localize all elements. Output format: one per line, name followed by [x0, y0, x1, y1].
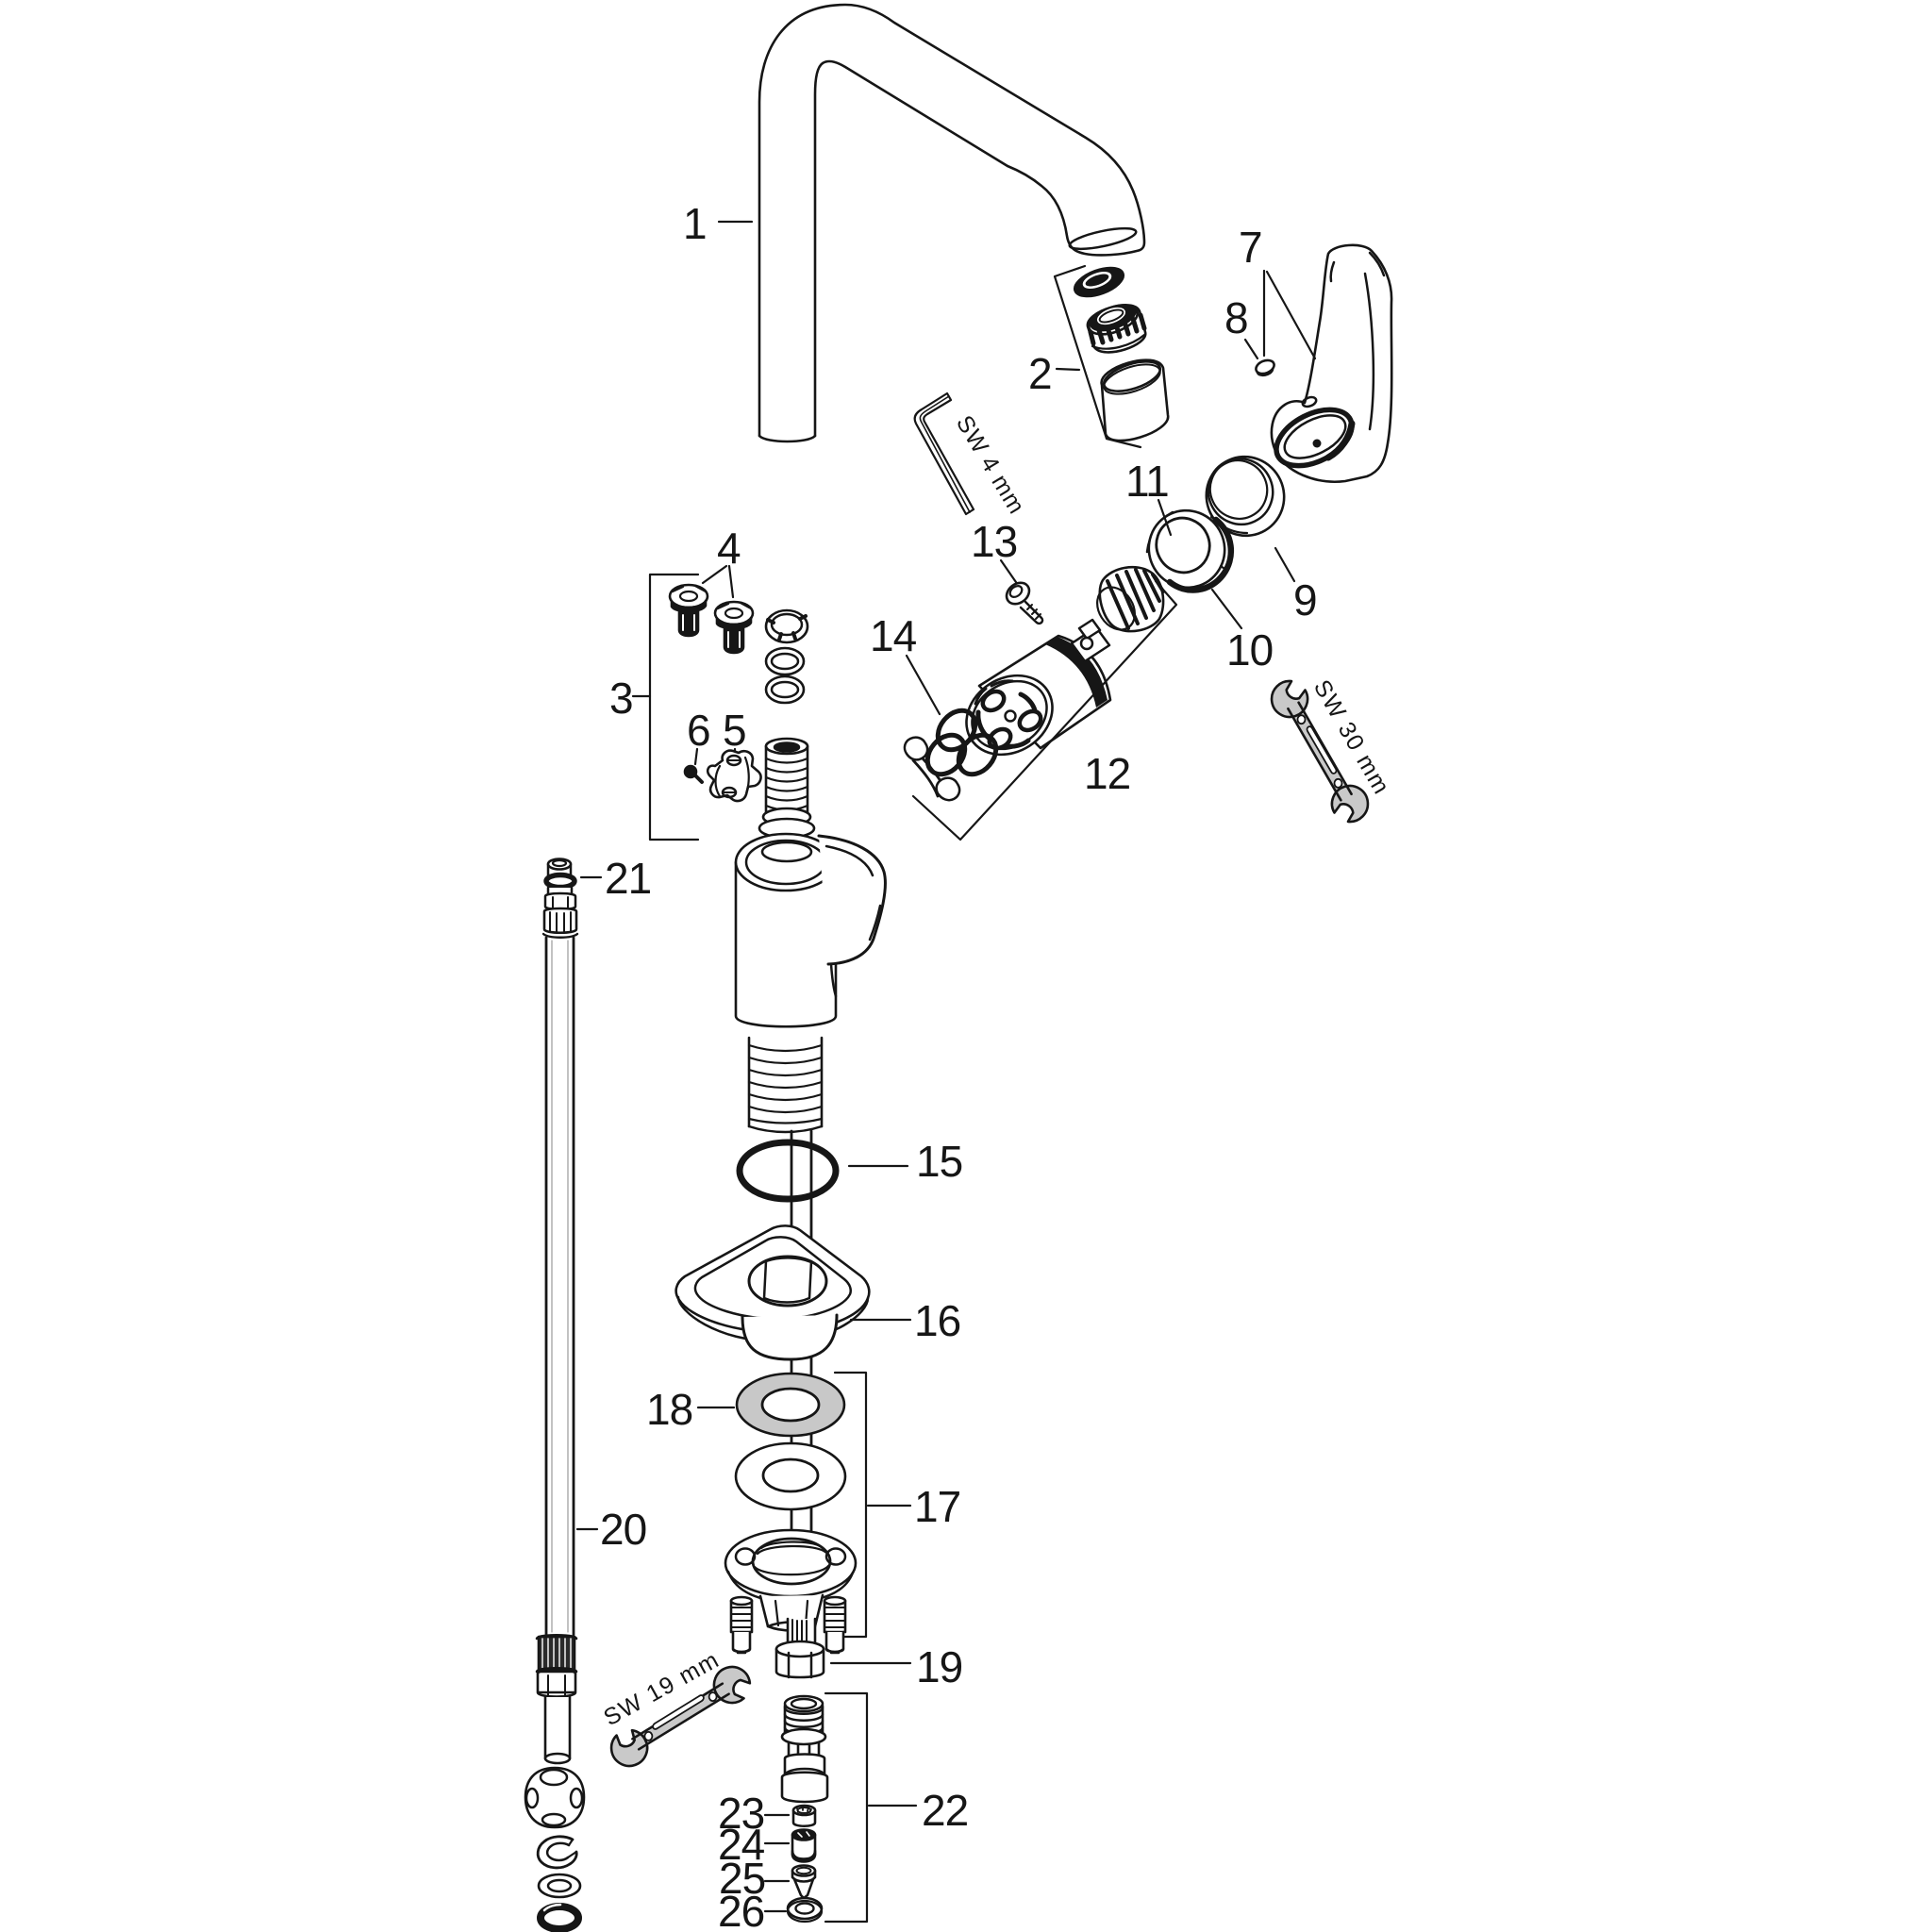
svg-text:7: 7: [1239, 223, 1262, 272]
svg-text:14: 14: [870, 611, 917, 660]
svg-text:5: 5: [723, 706, 746, 755]
svg-text:20: 20: [600, 1505, 646, 1554]
svg-text:13: 13: [971, 517, 1017, 566]
svg-text:18: 18: [646, 1385, 692, 1434]
svg-text:22: 22: [922, 1786, 968, 1835]
svg-text:21: 21: [605, 854, 651, 903]
svg-text:16: 16: [914, 1296, 960, 1345]
svg-text:1: 1: [683, 199, 707, 248]
svg-text:3: 3: [609, 674, 633, 723]
svg-text:10: 10: [1226, 625, 1273, 675]
svg-text:15: 15: [916, 1137, 962, 1186]
svg-text:11: 11: [1125, 457, 1169, 506]
svg-text:2: 2: [1028, 349, 1052, 398]
svg-text:9: 9: [1293, 575, 1317, 625]
svg-text:6: 6: [687, 706, 710, 755]
svg-text:17: 17: [914, 1482, 960, 1531]
svg-text:8: 8: [1224, 293, 1248, 342]
svg-text:26: 26: [718, 1887, 764, 1932]
svg-text:12: 12: [1084, 749, 1130, 798]
svg-text:19: 19: [916, 1642, 962, 1691]
